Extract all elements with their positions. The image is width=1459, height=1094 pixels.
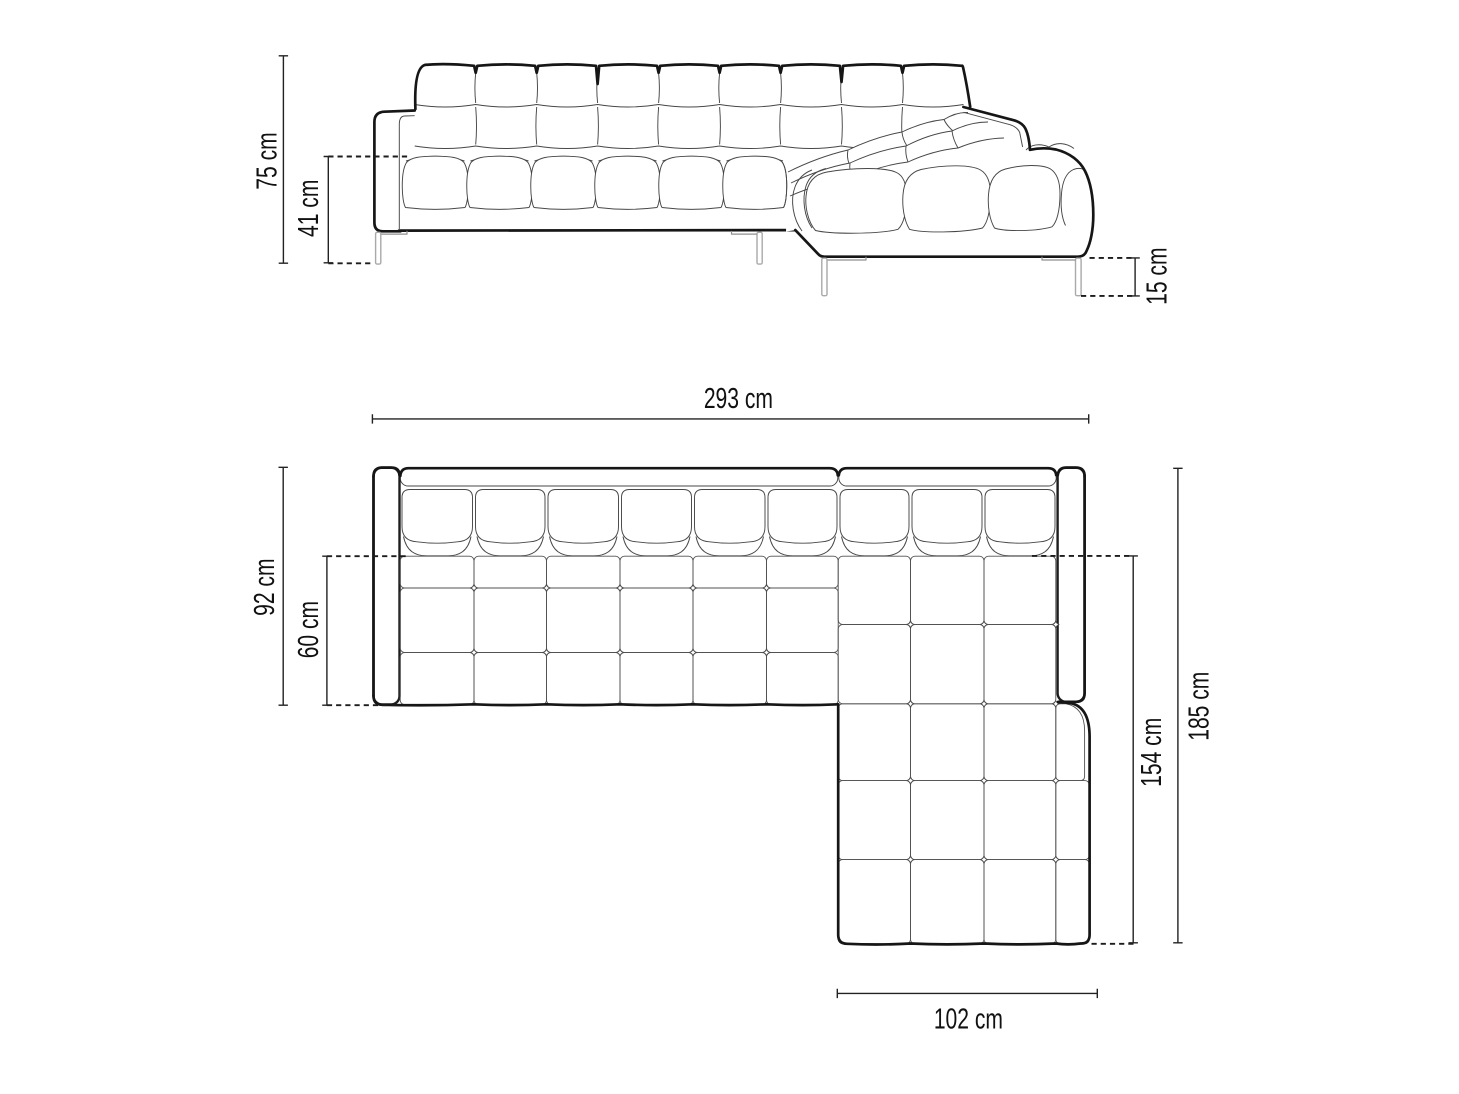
svg-text:102 cm: 102 cm — [934, 1004, 1003, 1036]
svg-text:92 cm: 92 cm — [249, 558, 281, 615]
svg-text:154 cm: 154 cm — [1136, 718, 1168, 787]
svg-text:41 cm: 41 cm — [293, 180, 325, 237]
svg-text:15 cm: 15 cm — [1141, 247, 1173, 304]
svg-text:293 cm: 293 cm — [704, 383, 773, 415]
svg-text:185 cm: 185 cm — [1183, 672, 1215, 741]
svg-text:75 cm: 75 cm — [251, 132, 283, 189]
svg-text:60 cm: 60 cm — [293, 601, 325, 658]
